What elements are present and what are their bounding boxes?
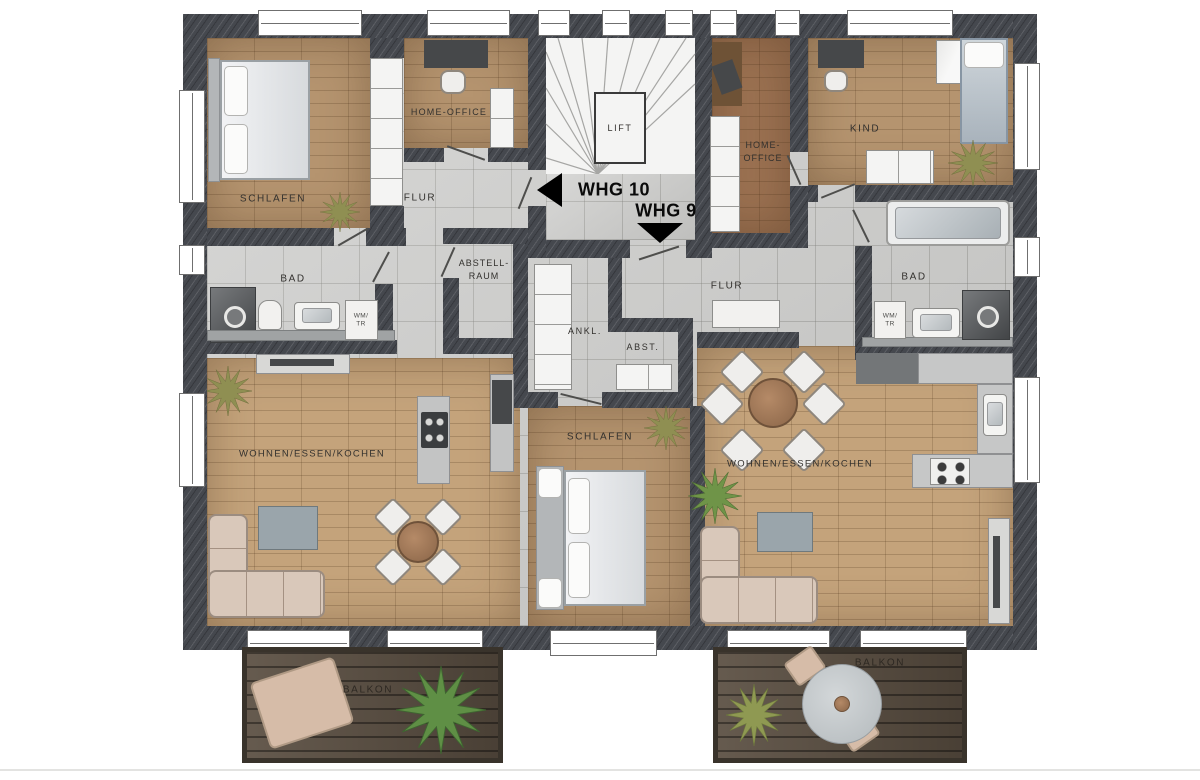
bathtub <box>886 200 1010 246</box>
whg10-entry-arrow <box>537 173 562 207</box>
wall <box>488 148 528 162</box>
hall-sideboard <box>712 300 780 328</box>
desk-chair <box>440 70 466 94</box>
room-label-flur-whg10: FLUR <box>404 193 437 204</box>
window <box>427 10 510 36</box>
window <box>602 10 630 36</box>
dining-table <box>397 521 439 563</box>
plant <box>204 366 252 416</box>
wall <box>404 148 444 162</box>
cabinet <box>710 116 740 232</box>
wall <box>546 240 630 258</box>
wm-label-line1: WM/ <box>354 313 369 320</box>
room-label-bad-whg9: BAD <box>901 272 926 283</box>
window <box>1014 63 1040 170</box>
coffee-table <box>258 506 318 550</box>
room-label-schlafen-whg10: SCHLAFEN <box>240 194 306 205</box>
abstellraum-line2: RAUM <box>469 271 500 281</box>
window <box>775 10 800 36</box>
shower <box>962 290 1010 340</box>
fridge-oven <box>492 380 512 424</box>
wall <box>370 38 404 58</box>
room-label-flur-whg9: FLUR <box>711 281 744 292</box>
dining-table <box>748 378 798 428</box>
whg9-entry-arrow <box>637 223 683 243</box>
sink <box>294 302 340 330</box>
wm-label-line1: WM/ <box>883 313 898 320</box>
room-label-balkon-whg9: BALKON <box>855 658 905 669</box>
washer-dryer-label: WM/ TR <box>354 313 369 328</box>
sink <box>912 308 960 338</box>
pillow <box>964 42 1004 68</box>
lift-label: LIFT <box>608 123 633 133</box>
toilet <box>258 300 282 330</box>
cabinet <box>490 88 514 148</box>
whg9-label: WHG 9 <box>635 201 697 222</box>
wardrobe <box>866 150 934 184</box>
pillow <box>568 542 590 598</box>
tv <box>993 536 1000 608</box>
pillow <box>224 66 248 116</box>
nightstand <box>538 468 562 498</box>
wall <box>366 228 406 246</box>
wm-label-line2: TR <box>356 320 365 327</box>
wall <box>790 186 808 248</box>
room-label-wohnen-whg10: WOHNEN/ESSEN/KOCHEN <box>239 449 385 460</box>
kitchen-sink <box>983 394 1007 436</box>
tv <box>270 359 334 366</box>
room-label-homeoffice-whg10: HOME-OFFICE <box>411 107 487 117</box>
coffee-table <box>757 512 813 552</box>
wm-label-line2: TR <box>885 320 894 327</box>
wall <box>608 318 678 332</box>
kitchen-tall-cabinets <box>856 353 918 384</box>
whg10-label: WHG 10 <box>578 180 650 201</box>
desk-chair <box>824 70 848 92</box>
room-label-kind: KIND <box>850 124 880 135</box>
storage-shelf <box>616 364 672 390</box>
window <box>179 245 205 275</box>
plant <box>726 684 782 746</box>
room-label-schlafen-whg9: SCHLAFEN <box>567 432 633 443</box>
wall <box>528 392 558 408</box>
wall <box>712 233 790 248</box>
kitchen-counter <box>918 353 1013 384</box>
pillow <box>224 124 248 174</box>
walk-in-closet <box>534 264 572 390</box>
window <box>179 393 205 487</box>
cooktop <box>421 412 448 448</box>
wall <box>608 258 622 320</box>
wall <box>528 206 546 258</box>
cooktop <box>930 458 970 485</box>
washer-dryer-label: WM/ TR <box>883 313 898 328</box>
room-label-homeoffice-whg9: HOME- OFFICE <box>744 139 783 165</box>
wall <box>513 352 528 408</box>
wall <box>678 318 693 408</box>
balcony-door <box>550 630 657 656</box>
balcony-table-center <box>834 696 850 712</box>
abstellraum-line1: ABSTELL- <box>459 258 510 268</box>
plant <box>320 192 360 232</box>
floor-plan-canvas: LIFT WM/ TR <box>0 0 1200 780</box>
wall <box>855 246 872 347</box>
homeoffice-whg9-line2: OFFICE <box>744 153 783 163</box>
plant <box>688 468 742 524</box>
wall <box>443 228 528 244</box>
wall <box>697 332 799 348</box>
desk <box>424 40 488 68</box>
wall <box>686 240 712 258</box>
room-label-wohnen-whg9: WOHNEN/ESSEN/KOCHEN <box>727 459 873 470</box>
wall <box>528 38 546 170</box>
window <box>258 10 362 36</box>
homeoffice-whg9-line1: HOME- <box>746 140 781 150</box>
room-label-abstellraum: ABSTELL- RAUM <box>459 257 510 283</box>
nightstand <box>538 578 562 608</box>
plant <box>396 666 486 754</box>
window <box>665 10 693 36</box>
room-label-bad-whg10: BAD <box>280 274 305 285</box>
window <box>1014 237 1040 277</box>
sofa-seat <box>700 576 818 624</box>
room-label-abst: ABST. <box>626 342 659 352</box>
window <box>1014 377 1040 483</box>
window <box>538 10 570 36</box>
window <box>179 90 205 203</box>
sofa-seat <box>208 570 325 618</box>
plant <box>644 406 688 450</box>
cabinet <box>936 40 962 84</box>
room-label-ankl: ANKL. <box>568 326 602 336</box>
room-label-balkon-whg10: BALKON <box>343 685 393 696</box>
wardrobe <box>370 58 403 206</box>
wall <box>513 244 528 352</box>
bed-headboard <box>208 58 220 182</box>
window <box>847 10 953 36</box>
pillow <box>568 478 590 534</box>
wall <box>808 185 818 202</box>
window <box>710 10 737 36</box>
plant <box>948 140 998 186</box>
wall <box>207 228 334 246</box>
desk <box>818 40 864 68</box>
wall <box>370 206 404 228</box>
wall <box>790 38 808 152</box>
page-edge-line <box>0 769 1200 771</box>
